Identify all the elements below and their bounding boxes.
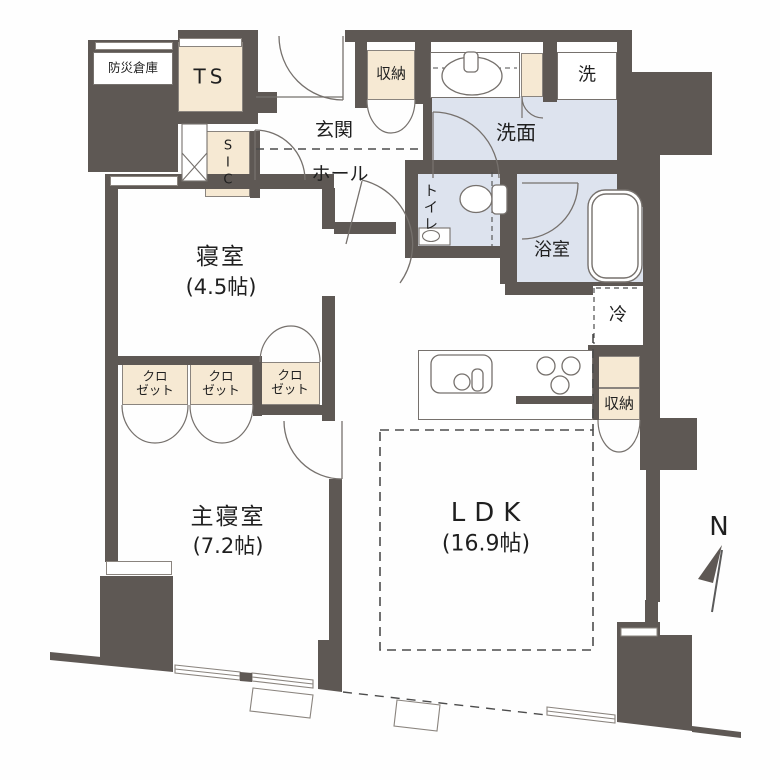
master-bedroom-name: 主寝室 [191,504,266,530]
wall [322,296,335,421]
balcony-dashed-line [343,692,547,715]
wall [640,345,660,470]
closet-2-label: クロゼット [202,370,240,399]
washroom-floor [431,96,643,160]
closet-1-folding-door-icon [122,405,188,443]
bedroom-size: (4.5帖) [186,275,257,299]
wall [118,356,256,365]
bathroom-label: 浴室 [534,241,570,262]
wall [250,131,260,198]
compass-north-label: N [709,513,728,543]
wall [405,160,645,174]
laundry-label: 洗 [578,66,596,87]
ldk-name: LDK [451,499,530,529]
wall [253,92,277,113]
wall-mass-bottom-right [617,622,692,731]
hall-storage-folding-door-icon [367,100,415,133]
window [110,176,178,186]
balcony-post [240,672,252,682]
wall [645,600,658,624]
hall-storage-label: 収納 [376,65,406,82]
wall [423,96,432,162]
hall-closet-door-icon [255,130,305,180]
wall-tail [692,726,741,738]
hall-label: ホール [311,164,368,186]
wall [415,42,431,104]
balcony-edge [50,576,741,738]
kitchen-storage-divider [598,387,640,389]
kitchen-counter [418,350,593,420]
floor-plan: 防災倉庫 TS SIC 玄関 ホール 収納 洗 洗面 トイレ 浴室 冷 収納 寝… [0,0,780,780]
kitchen-storage-label: 収納 [604,395,634,412]
closet-3-folding-door-icon [260,326,320,362]
toilet-label: トイレ [421,183,438,233]
closet-3-label: クロゼット [271,369,309,398]
window [179,38,242,47]
wall [405,246,510,258]
wall [105,188,118,562]
shoe-closet-label: SIC [220,139,235,190]
refrigerator-label: 冷 [609,306,627,327]
balcony-partition [250,688,440,731]
wall [345,30,632,42]
ldk-size: (16.9帖) [442,531,530,556]
window [95,42,173,50]
entrance-door-icon [256,36,343,100]
kitchen-storage-folding-door-icon [598,420,640,452]
washroom-label: 洗面 [496,122,536,145]
wall [543,42,557,102]
closet-1-label: クロゼット [136,370,174,399]
shoe-cabinet-icon [182,124,207,181]
linen-cabinet-box [521,53,543,97]
disaster-storage-label: 防災倉庫 [108,61,158,75]
wall [646,470,660,602]
wall [631,72,712,155]
washbasin-counter [430,52,520,98]
entrance-label: 玄関 [315,120,353,142]
master-bedroom-size: (7.2帖) [193,534,264,558]
wall [150,112,258,124]
trunk-space-label: TS [194,66,227,89]
balcony-window [175,665,615,723]
window [106,561,172,575]
wall-pillar [318,640,342,692]
north-arrow-icon [698,545,722,612]
window [621,628,657,636]
closet-2-folding-door-icon [190,405,253,443]
wall [500,172,517,284]
bedroom-name: 寝室 [196,244,246,270]
wall [643,190,660,352]
wall [329,479,342,644]
wall [617,38,632,205]
wall [355,42,367,108]
wall [405,172,418,248]
wall [658,418,697,470]
wall [334,222,396,234]
master-bedroom-door-icon [284,421,342,479]
wall [256,405,334,415]
